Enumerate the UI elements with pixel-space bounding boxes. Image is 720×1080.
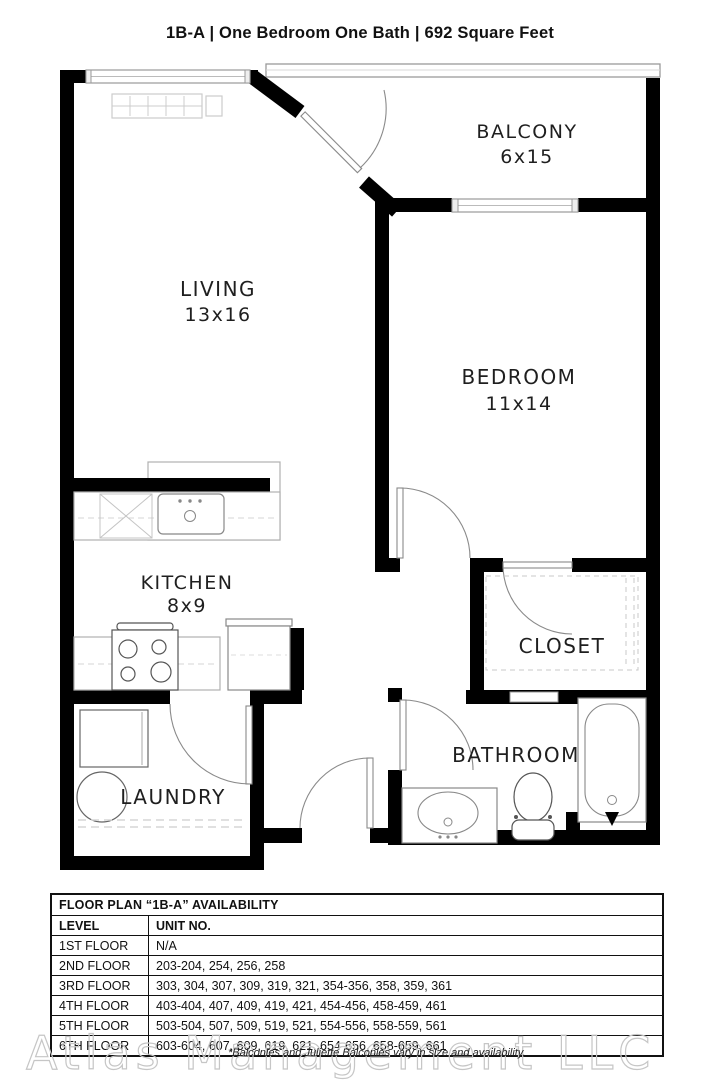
laundry-door [170, 704, 252, 784]
bathroom-label: BATHROOM [452, 743, 580, 767]
bathtub [578, 698, 646, 826]
floor-plan-drawing: LIVING 13x16 BALCONY 6x15 BEDROOM 11x14 … [0, 0, 720, 890]
entry-door [301, 90, 386, 173]
baseboard-heater [112, 94, 222, 118]
living-label: LIVING [180, 277, 256, 301]
table-row: 3RD FLOOR 303, 304, 307, 309, 319, 321, … [52, 976, 662, 996]
bedroom-label: BEDROOM [462, 365, 577, 389]
closet-door [503, 562, 572, 634]
table-title: FLOOR PLAN “1B-A” AVAILABILITY [52, 895, 662, 916]
table-row: 2ND FLOOR 203-204, 254, 256, 258 [52, 956, 662, 976]
closet-label: CLOSET [519, 634, 606, 658]
bathroom-niche [510, 692, 558, 702]
kitchen-dims: 8x9 [167, 595, 207, 617]
laundry-fixtures [77, 710, 246, 827]
living-window [86, 70, 250, 83]
balcony-label: BALCONY [476, 121, 577, 143]
floor-plan-page: 1B-A | One Bedroom One Bath | 692 Square… [0, 0, 720, 1080]
living-dims: 13x16 [184, 304, 251, 326]
hall-entry-door [300, 758, 373, 828]
stove [112, 623, 178, 690]
table-header-row: LEVEL UNIT NO. [52, 916, 662, 936]
balcony-slider-window [452, 199, 578, 212]
vanity-sink [402, 788, 497, 843]
col-unit-no: UNIT NO. [149, 916, 662, 935]
col-level: LEVEL [52, 916, 149, 935]
table-row: 4TH FLOOR 403-404, 407, 409, 419, 421, 4… [52, 996, 662, 1016]
bathroom-fixtures [402, 698, 646, 843]
balcony-note: *Balconies and Juliette Balconies vary i… [228, 1047, 526, 1059]
bedroom-dims: 11x14 [485, 393, 552, 415]
balcony-dims: 6x15 [500, 146, 554, 168]
washer [80, 710, 148, 767]
kitchen-label: KITCHEN [141, 572, 234, 594]
kitchen-sink [158, 494, 224, 534]
balcony-railing [266, 64, 660, 77]
laundry-label: LAUNDRY [120, 785, 226, 809]
bedroom-door [397, 488, 470, 558]
toilet [512, 773, 554, 840]
table-row: 1ST FLOOR N/A [52, 936, 662, 956]
refrigerator [226, 619, 292, 690]
